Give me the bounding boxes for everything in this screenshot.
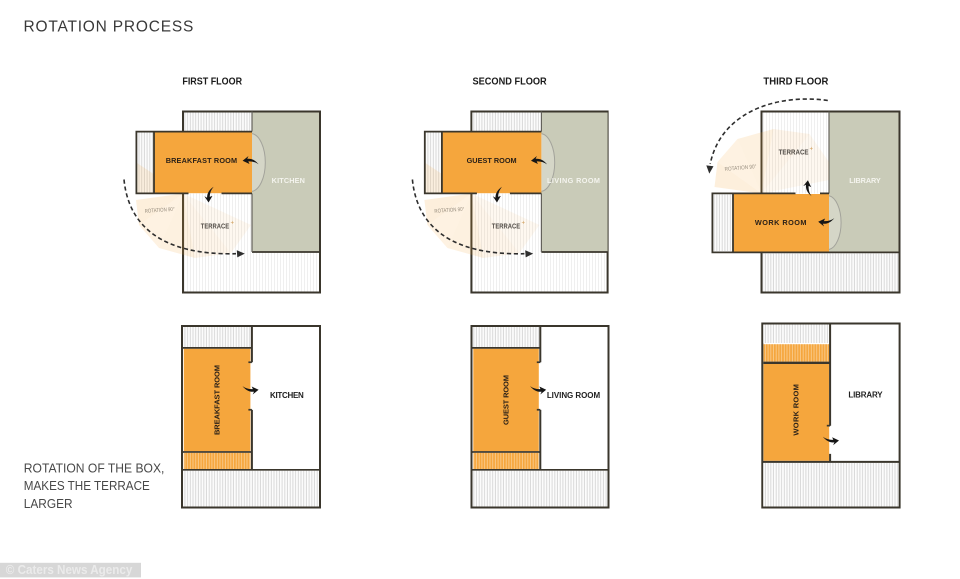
svg-text:SECOND FLOOR: SECOND FLOOR bbox=[473, 76, 548, 88]
svg-text:BREAKFAST ROOM: BREAKFAST ROOM bbox=[166, 156, 237, 165]
svg-text:MAKES THE TERRACE: MAKES THE TERRACE bbox=[24, 478, 150, 493]
svg-text:TERRACE: TERRACE bbox=[779, 148, 809, 157]
svg-text:WORK ROOM: WORK ROOM bbox=[791, 384, 800, 436]
svg-text:FIRST FLOOR: FIRST FLOOR bbox=[182, 76, 242, 88]
svg-text:+: + bbox=[231, 221, 235, 227]
svg-text:LIBRARY: LIBRARY bbox=[848, 391, 883, 400]
svg-text:KITCHEN: KITCHEN bbox=[272, 176, 305, 185]
svg-text:ROTATION OF THE BOX,: ROTATION OF THE BOX, bbox=[24, 461, 165, 476]
svg-text:© Caters News Agency: © Caters News Agency bbox=[6, 563, 133, 577]
svg-text:ROTATION PROCESS: ROTATION PROCESS bbox=[24, 19, 194, 36]
svg-text:BREAKFAST ROOM: BREAKFAST ROOM bbox=[213, 365, 222, 435]
svg-text:GUEST ROOM: GUEST ROOM bbox=[467, 156, 517, 165]
svg-text:LIBRARY: LIBRARY bbox=[849, 176, 881, 185]
svg-text:GUEST ROOM: GUEST ROOM bbox=[502, 375, 511, 425]
svg-text:LIVING ROOM: LIVING ROOM bbox=[547, 176, 600, 185]
svg-text:+: + bbox=[810, 147, 814, 153]
svg-text:THIRD FLOOR: THIRD FLOOR bbox=[763, 76, 828, 88]
svg-text:TERRACE: TERRACE bbox=[492, 222, 521, 231]
svg-text:WORK ROOM: WORK ROOM bbox=[755, 218, 807, 227]
svg-text:TERRACE: TERRACE bbox=[201, 222, 230, 231]
svg-text:LIVING ROOM: LIVING ROOM bbox=[547, 391, 601, 400]
svg-text:KITCHEN: KITCHEN bbox=[270, 391, 304, 400]
svg-text:+: + bbox=[522, 221, 526, 227]
svg-text:LARGER: LARGER bbox=[24, 496, 73, 511]
